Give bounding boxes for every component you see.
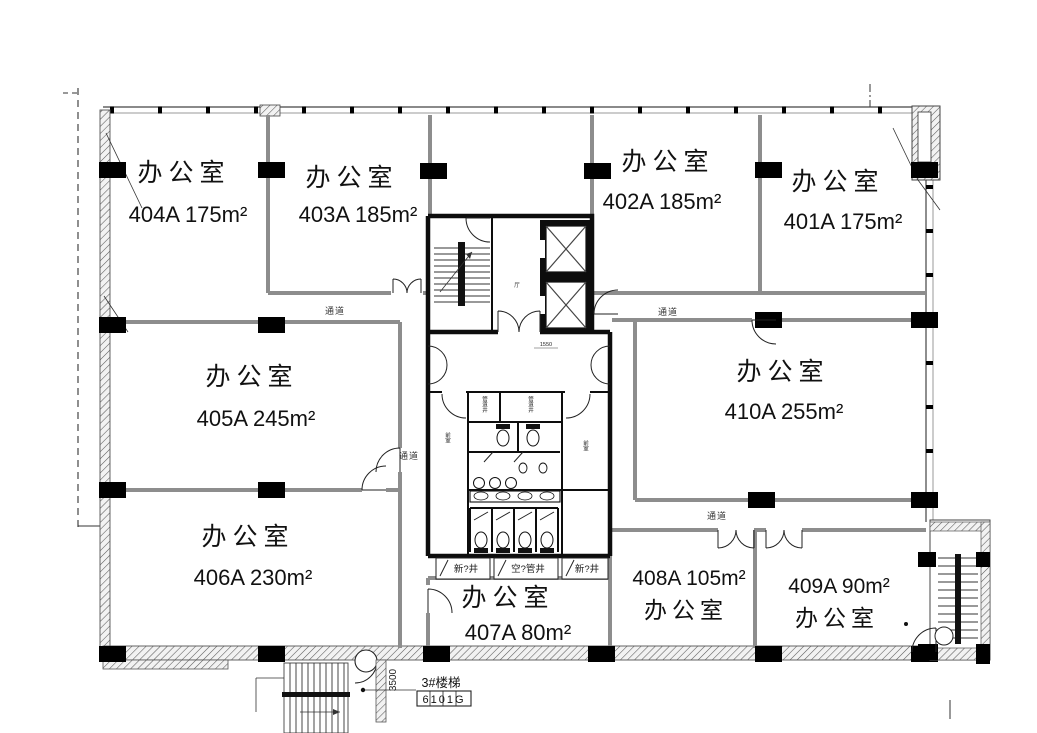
room-408a: 408A 105m² 办公室 [632,567,745,623]
toilet-lower [470,491,560,553]
room-403a: 办公室 403A 185m² [299,164,418,227]
room-408a-code: 408A 105m² [632,567,745,590]
anteroom-a-label: 前室 [444,431,451,444]
room-409a-code: 409A 90m² [788,575,890,598]
room-404a-type: 办公室 [137,159,230,187]
room-402a: 办公室 402A 185m² [603,148,722,214]
floorplan-drawing: 厅 1550 管道井 管道井 前室 前室 [0,0,1037,733]
room-405a-type: 办公室 [205,363,298,391]
right-stair [904,520,990,664]
room-401a: 办公室 401A 175m² [784,168,903,234]
room-407a-type: 办公室 [461,584,554,612]
ac-pipe-shaft-label: 空?管井 [511,563,545,575]
elevators [538,220,592,332]
elevator-lobby-label: 厅 [513,282,520,288]
room-407a-code: 407A 80m² [465,620,571,645]
toilet-upper [474,422,548,489]
lobby-dimension: 1550 [540,342,552,348]
room-403a-type: 办公室 [305,164,398,192]
room-410a-code: 410A 255m² [725,399,844,424]
pipe-shaft-a-label: 管道井 [481,395,488,414]
stair-note-title: 3#楼梯 [422,675,461,690]
anteroom-b-label: 前室 [582,439,589,452]
room-401a-type: 办公室 [791,168,884,196]
stair-note-tag: 6101G [422,694,465,706]
room-408a-type: 办公室 [644,597,728,623]
room-401a-code: 401A 175m² [784,209,903,234]
mech-shaft-strip: 新?井 空?管井 新?井 [436,558,608,579]
room-405a: 办公室 405A 245m² [197,363,316,431]
room-410a: 办公室 410A 255m² [725,358,844,424]
room-407a: 办公室 407A 80m² [461,584,571,645]
room-410a-type: 办公室 [736,358,829,386]
room-409a: 409A 90m² 办公室 [788,575,890,631]
room-406a: 办公室 406A 230m² [194,523,313,590]
corridor-mid-label: 通道 [399,450,419,461]
room-406a-code: 406A 230m² [194,565,313,590]
right-stair-rail [955,554,961,644]
floorplan-page: 厅 1550 管道井 管道井 前室 前室 [0,0,1037,733]
room-409a-type: 办公室 [795,605,879,631]
core-stair [434,216,492,332]
room-402a-type: 办公室 [621,148,714,176]
room-405a-code: 405A 245m² [197,406,316,431]
corridor-lower-label: 通道 [707,510,727,521]
room-404a-code: 404A 175m² [129,202,248,227]
room-404a: 办公室 404A 175m² [129,159,248,227]
pipe-shaft-b-label: 管道井 [527,395,534,414]
corridor-left-label: 通道 [325,305,345,316]
stair-dim-3500: 3500 [388,668,399,691]
fresh-air-shaft-right-label: 新?井 [575,563,599,575]
room-402a-code: 402A 185m² [603,189,722,214]
fresh-air-shaft-left-label: 新?井 [454,563,478,575]
core: 厅 1550 管道井 管道井 前室 前室 [428,216,610,579]
corridor-labels: 通道 通道 通道 通道 [325,305,727,521]
room-403a-code: 403A 185m² [299,202,418,227]
corridor-right-label: 通道 [658,306,678,317]
stair-rail [458,242,465,306]
room-406a-type: 办公室 [201,523,294,551]
external-stair: 3#楼梯 6101G 3500 [256,650,471,733]
